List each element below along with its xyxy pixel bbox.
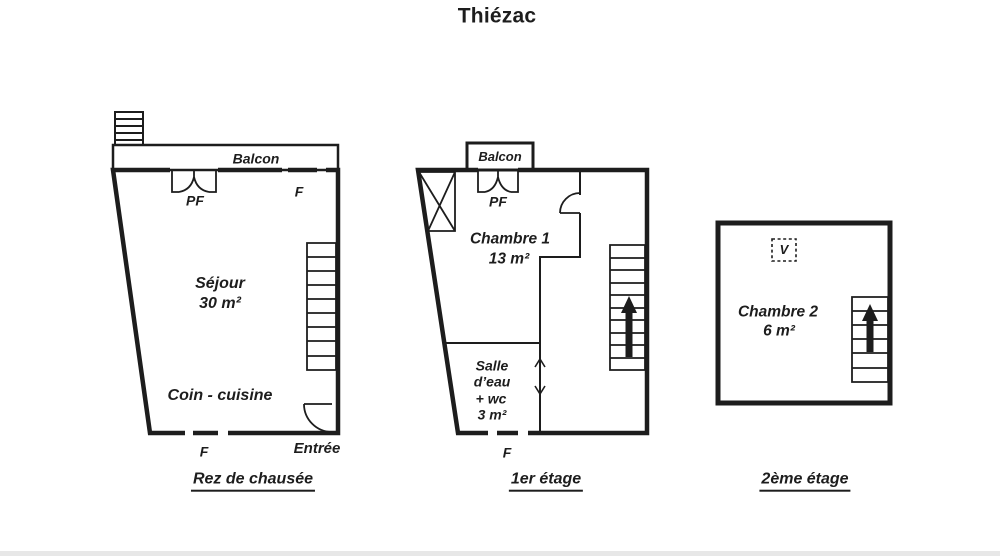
room-name: Chambre 2: [738, 303, 818, 320]
window-label: F: [200, 444, 209, 459]
bedroom-door-arc: [560, 193, 580, 213]
scan-edge-artifact: [0, 551, 1000, 556]
floor-label: 2ème étage: [759, 471, 850, 492]
floor-label: 1er étage: [509, 471, 583, 492]
room-name: d’eau: [474, 374, 511, 389]
floor-label: Rez de chausée: [191, 471, 315, 492]
room-area: 13 m²: [489, 250, 530, 267]
balcony-outline: [113, 145, 338, 170]
room-name: Coin - cuisine: [168, 387, 273, 405]
room-name: Séjour: [195, 275, 245, 293]
stairs-up-arrow-icon: [621, 296, 637, 357]
french-window-label: PF: [186, 193, 204, 208]
room-area: 30 m²: [199, 295, 241, 313]
staircase: [307, 243, 336, 370]
page-title: Thiézac: [458, 4, 536, 27]
entry-door-arc: [304, 404, 332, 432]
ground-floor-plan: [113, 112, 338, 433]
room-name: Chambre 1: [470, 230, 550, 247]
outer-walls: [418, 170, 647, 433]
exterior-ladder-icon: [115, 112, 143, 145]
floor-plan-page: Thiézac Balcon PF F Séjour 30 m² Coin - …: [0, 0, 1000, 556]
room-name: Salle: [476, 358, 509, 373]
skylight-label: V: [780, 243, 789, 257]
balcony-label: Balcon: [478, 150, 521, 164]
french-window-symbol: [478, 170, 518, 192]
french-window-label: PF: [489, 194, 507, 209]
french-window-symbol: [172, 170, 216, 192]
window-label: F: [503, 445, 512, 460]
room-name: + wc: [476, 391, 507, 406]
room-area: 6 m²: [763, 322, 795, 339]
window-label: F: [295, 184, 304, 199]
first-floor-plan: [418, 143, 647, 433]
balcony-label: Balcon: [233, 151, 280, 166]
room-area: 3 m²: [478, 407, 507, 422]
entrance-label: Entrée: [294, 441, 341, 458]
